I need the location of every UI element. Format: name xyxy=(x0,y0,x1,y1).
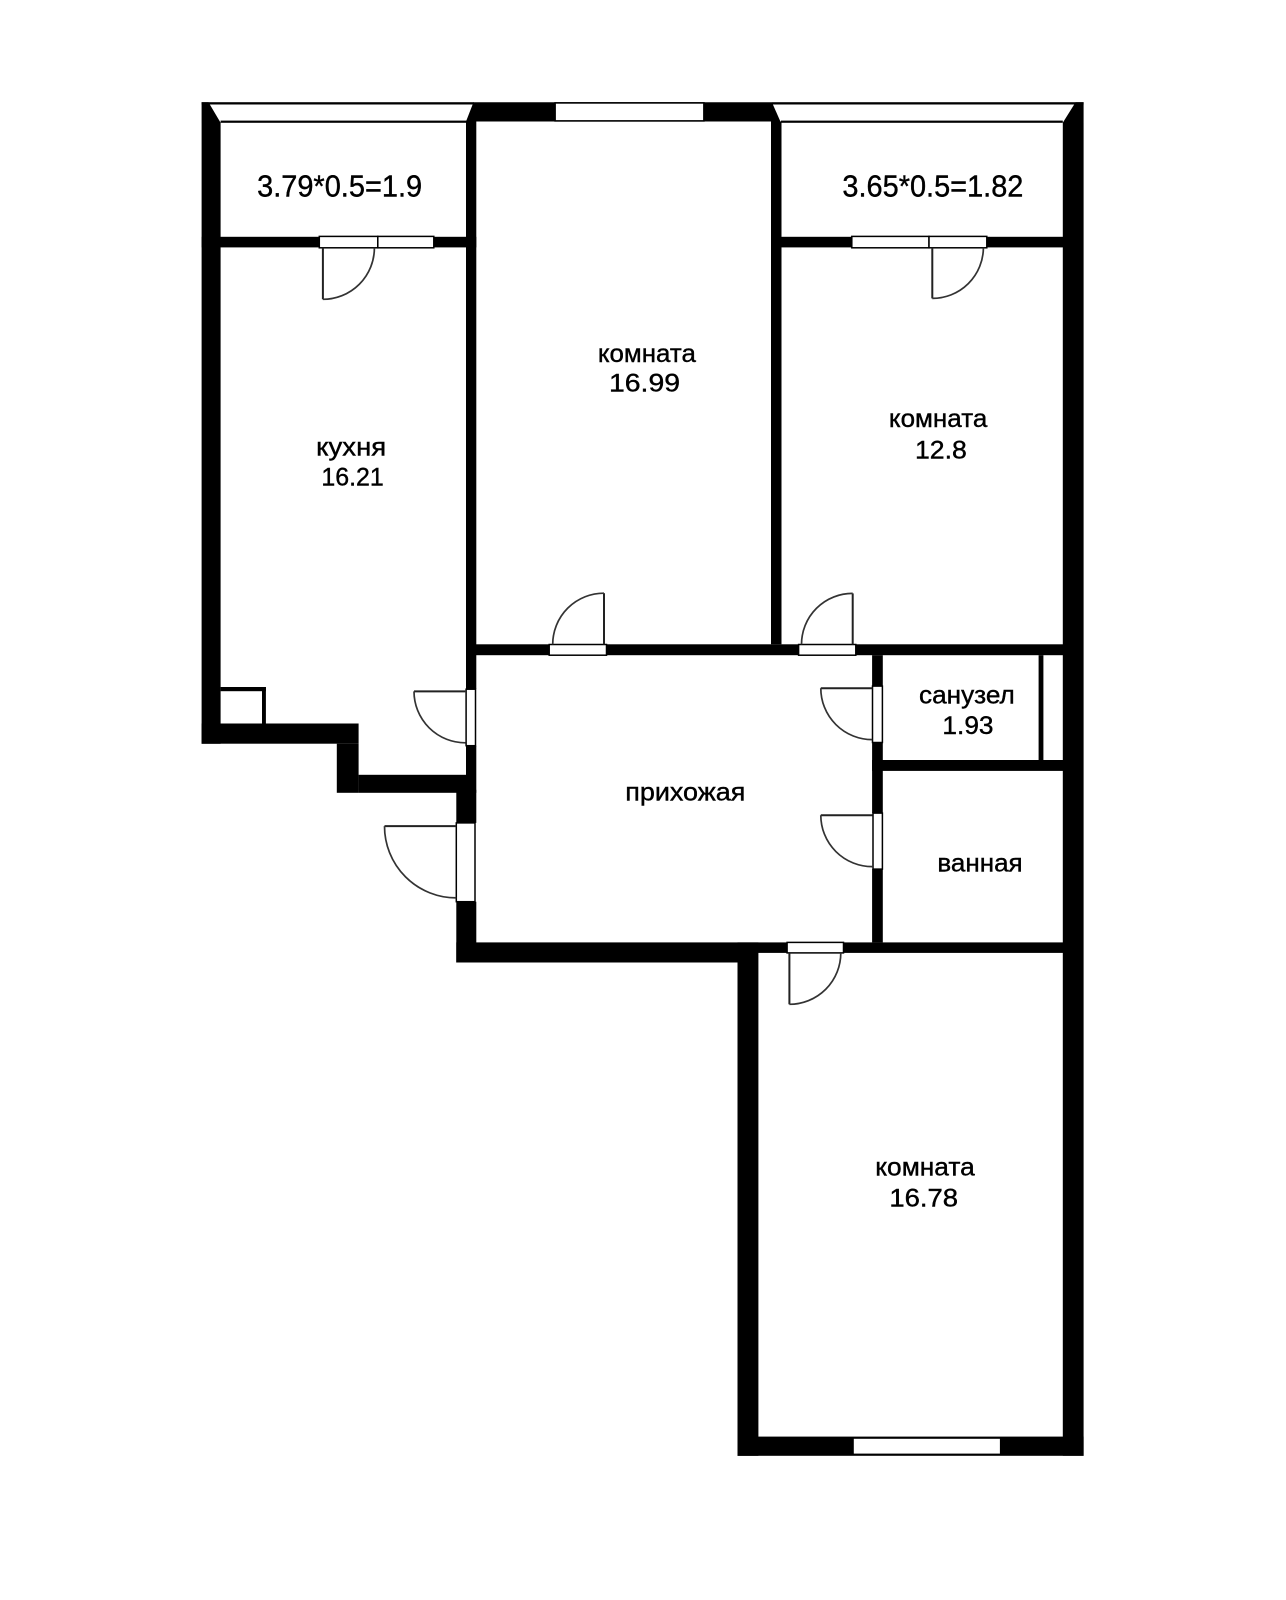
svg-text:16.99: 16.99 xyxy=(609,370,680,398)
svg-text:прихожая: прихожая xyxy=(625,778,745,806)
svg-text:санузел: санузел xyxy=(919,682,1015,710)
svg-text:3.79*0.5=1.9: 3.79*0.5=1.9 xyxy=(257,169,422,204)
svg-text:кухня: кухня xyxy=(316,434,386,462)
svg-text:12.8: 12.8 xyxy=(915,436,967,464)
svg-text:3.65*0.5=1.82: 3.65*0.5=1.82 xyxy=(842,169,1023,204)
svg-text:комната: комната xyxy=(875,1153,975,1181)
svg-text:комната: комната xyxy=(598,340,696,368)
svg-text:ванная: ванная xyxy=(937,849,1022,877)
svg-text:1.93: 1.93 xyxy=(942,712,993,740)
svg-text:16.21: 16.21 xyxy=(321,463,383,491)
svg-text:16.78: 16.78 xyxy=(889,1185,958,1213)
svg-text:комната: комната xyxy=(889,405,987,433)
